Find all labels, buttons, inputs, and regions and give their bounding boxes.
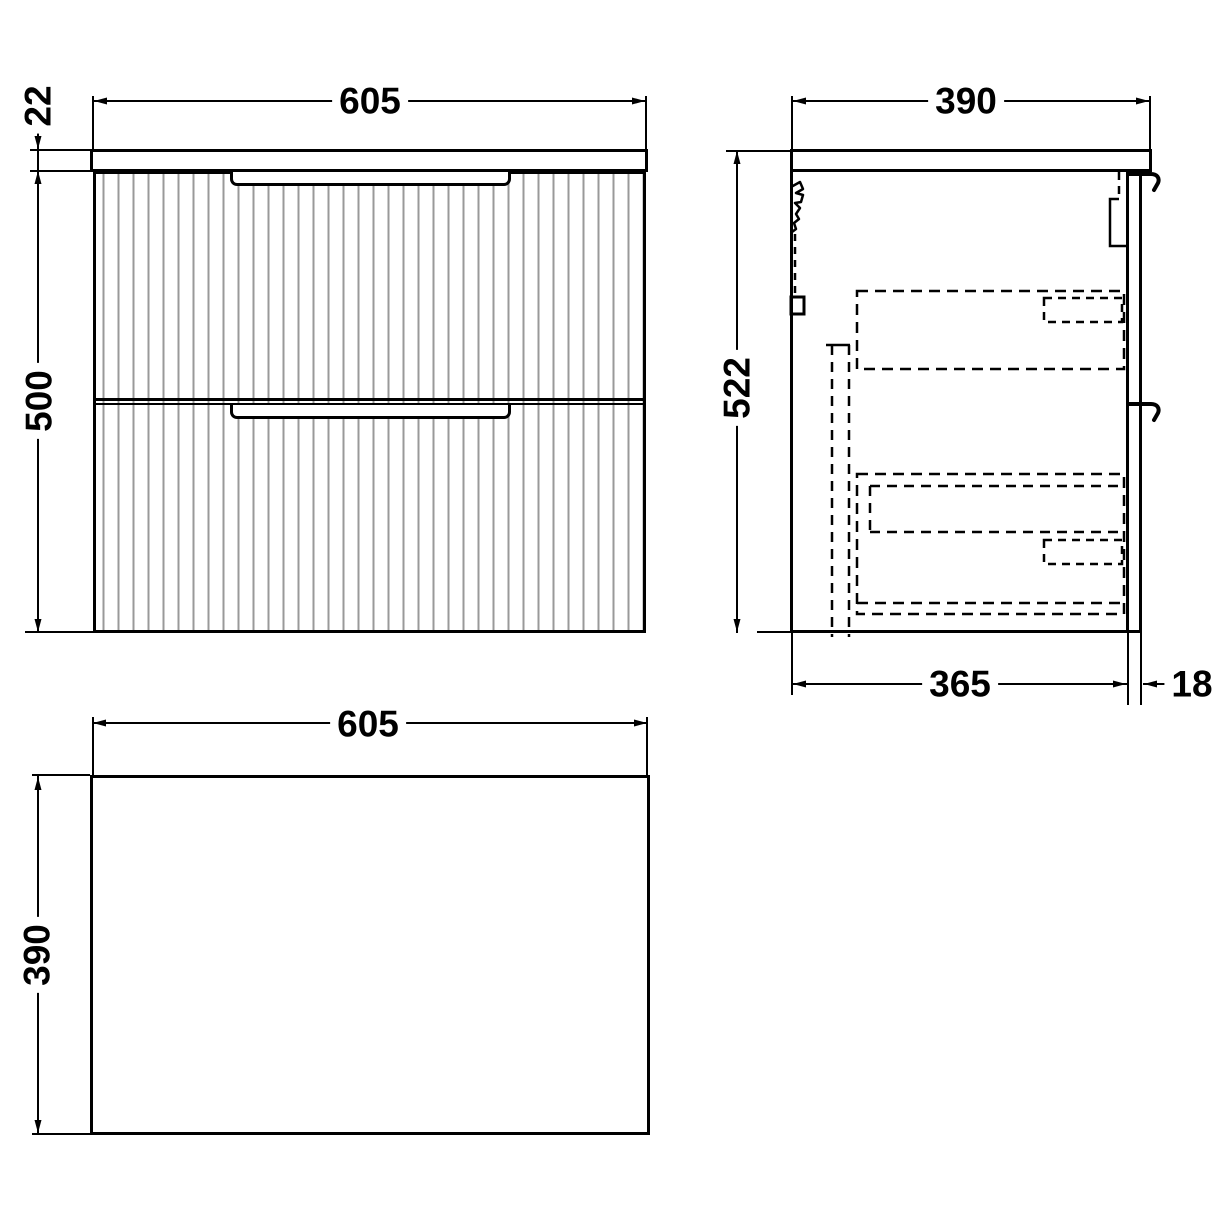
side-lower-drawer-box [857, 474, 1124, 614]
side-depth-ext-right [1149, 96, 1151, 149]
side-ext-panel-back-below [1127, 633, 1129, 705]
side-bottom-line [790, 630, 1142, 633]
side-depth-value: 390 [928, 83, 1004, 120]
side-lower-drawer-handle-recess [1044, 540, 1122, 564]
front-height-value: 500 [21, 363, 58, 439]
side-body-depth-value: 365 [922, 666, 998, 703]
side-worktop [790, 149, 1152, 172]
side-bottom-drawer-handle-hook [1129, 404, 1159, 420]
technical-drawing-canvas: 605 22 500 390 522 36 [0, 0, 1224, 1224]
plan-width-value: 605 [330, 706, 406, 743]
plan-width-ext-right [646, 717, 648, 775]
front-worktop [90, 149, 648, 172]
side-handle-groove-step [1110, 199, 1126, 246]
side-front-panel-back-face [1126, 171, 1129, 633]
side-ext-panel-front-below [1140, 633, 1142, 705]
side-upper-drawer-box [857, 291, 1124, 369]
front-bottom-drawer-handle [230, 405, 511, 419]
front-cabinet-body [93, 171, 646, 633]
side-depth-ext-left [791, 96, 793, 149]
front-width-value: 605 [332, 83, 408, 120]
plan-depth-ext-bottom [32, 1133, 90, 1135]
side-height-ext-bottom [757, 631, 790, 633]
plan-width-ext-left [92, 717, 94, 775]
front-width-ext-left [92, 96, 94, 149]
plan-outline [90, 775, 650, 1135]
front-drawer-divider [96, 398, 643, 401]
plan-depth-value: 390 [19, 917, 56, 993]
side-back-line [790, 171, 793, 633]
side-height-value: 522 [719, 350, 756, 426]
plan-depth-ext-top [32, 774, 90, 776]
front-width-ext-right [645, 96, 647, 149]
front-worktop-ext-top [30, 149, 90, 151]
front-top-drawer-handle [230, 172, 511, 186]
side-front-panel-front-face [1139, 171, 1142, 633]
side-top-drawer-handle-hook [1129, 174, 1159, 190]
side-panel-thickness-value: 18 [1164, 666, 1219, 703]
side-upper-drawer-handle-recess [1044, 298, 1122, 322]
side-ext-back-below [791, 633, 793, 695]
front-worktop-thickness-value: 22 [20, 78, 57, 133]
front-height-ext-bottom [25, 631, 93, 633]
side-lower-drawer-inner-profile [870, 486, 1123, 532]
front-worktop-ext-bottom [30, 170, 93, 172]
